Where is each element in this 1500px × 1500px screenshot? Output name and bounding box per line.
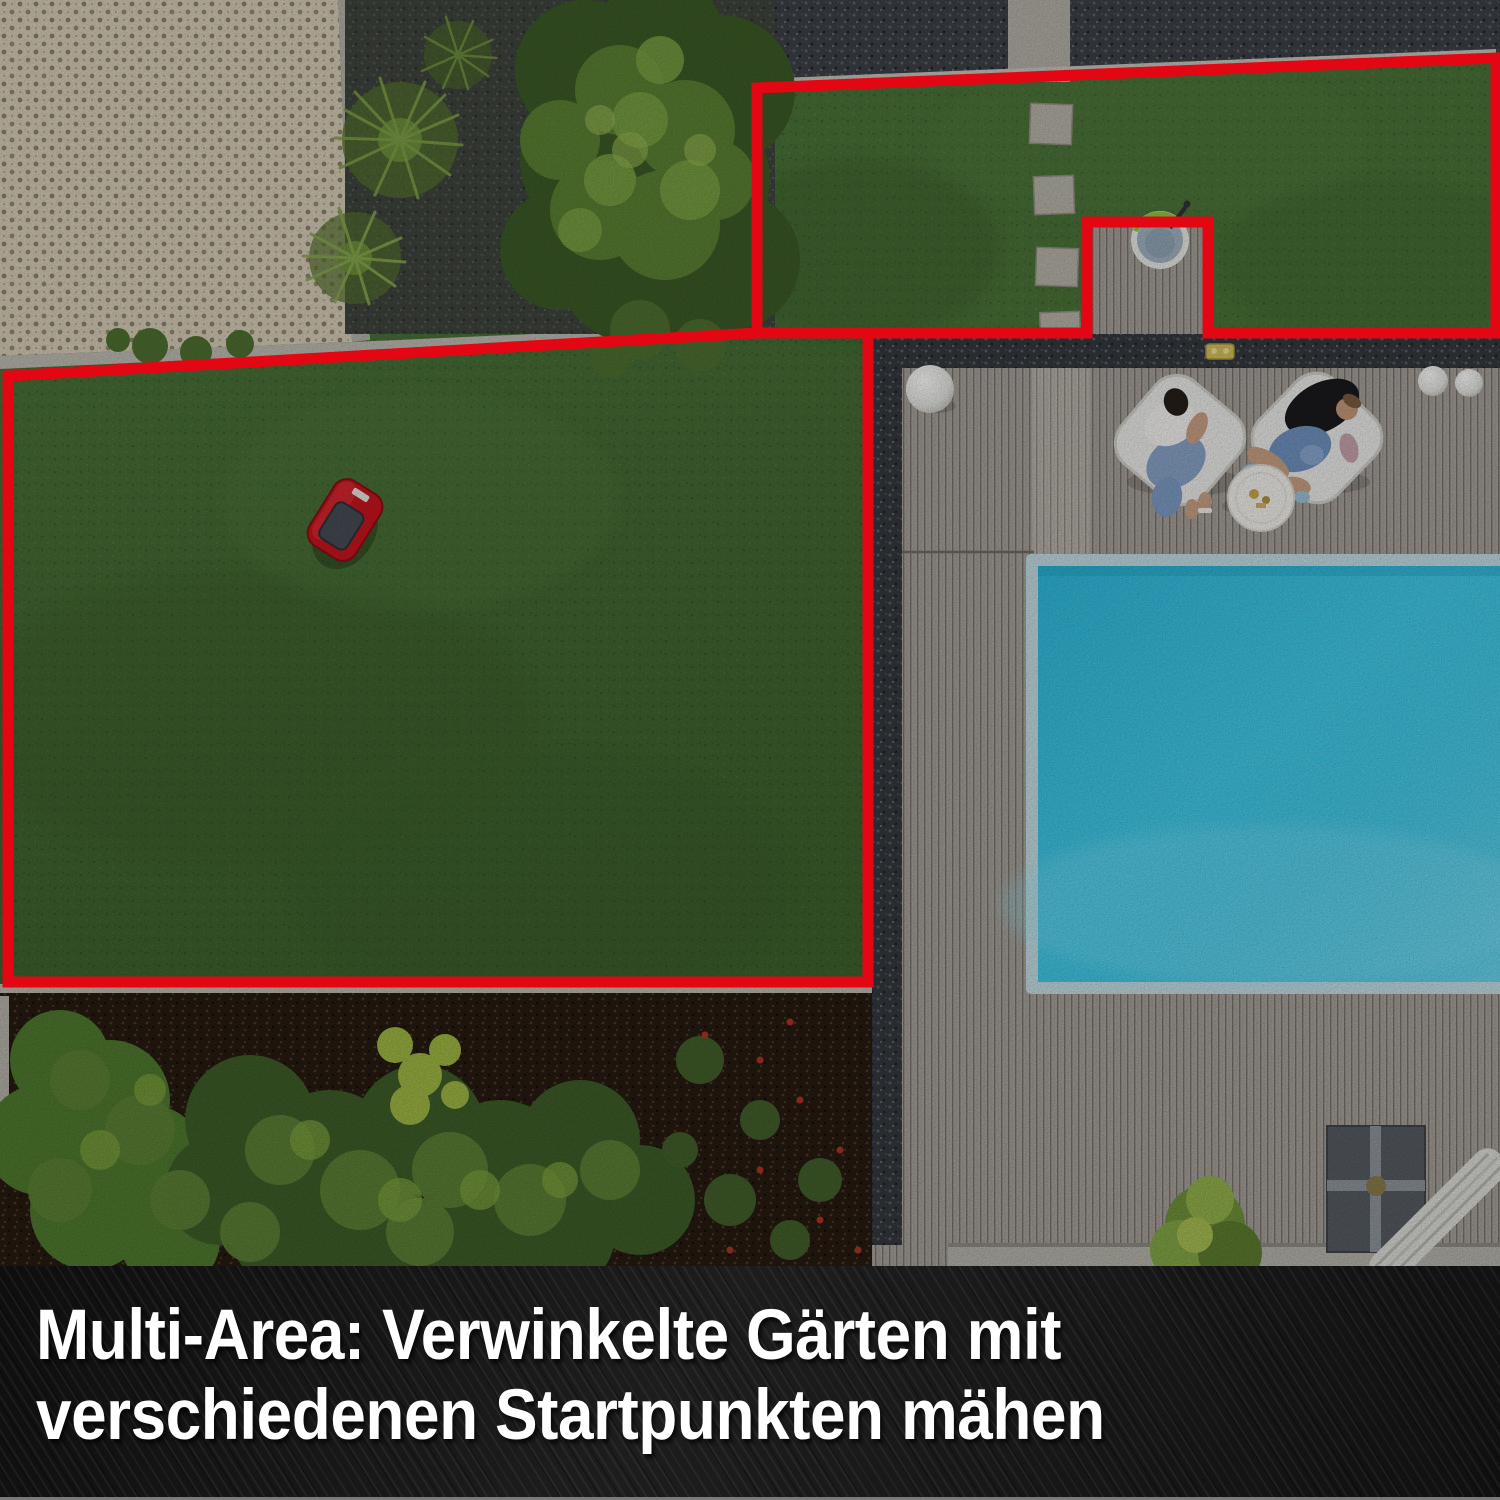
photo-grain <box>0 0 1500 1266</box>
caption-bar: Multi-Area: Verwinkelte Gärten mit versc… <box>0 1266 1500 1500</box>
product-feature-image: Multi-Area: Verwinkelte Gärten mit versc… <box>0 0 1500 1500</box>
caption-line2: verschiedenen Startpunkten mähen <box>36 1376 1336 1456</box>
aerial-garden-photo <box>0 0 1500 1266</box>
caption-line1: Multi-Area: Verwinkelte Gärten mit <box>36 1296 1336 1376</box>
